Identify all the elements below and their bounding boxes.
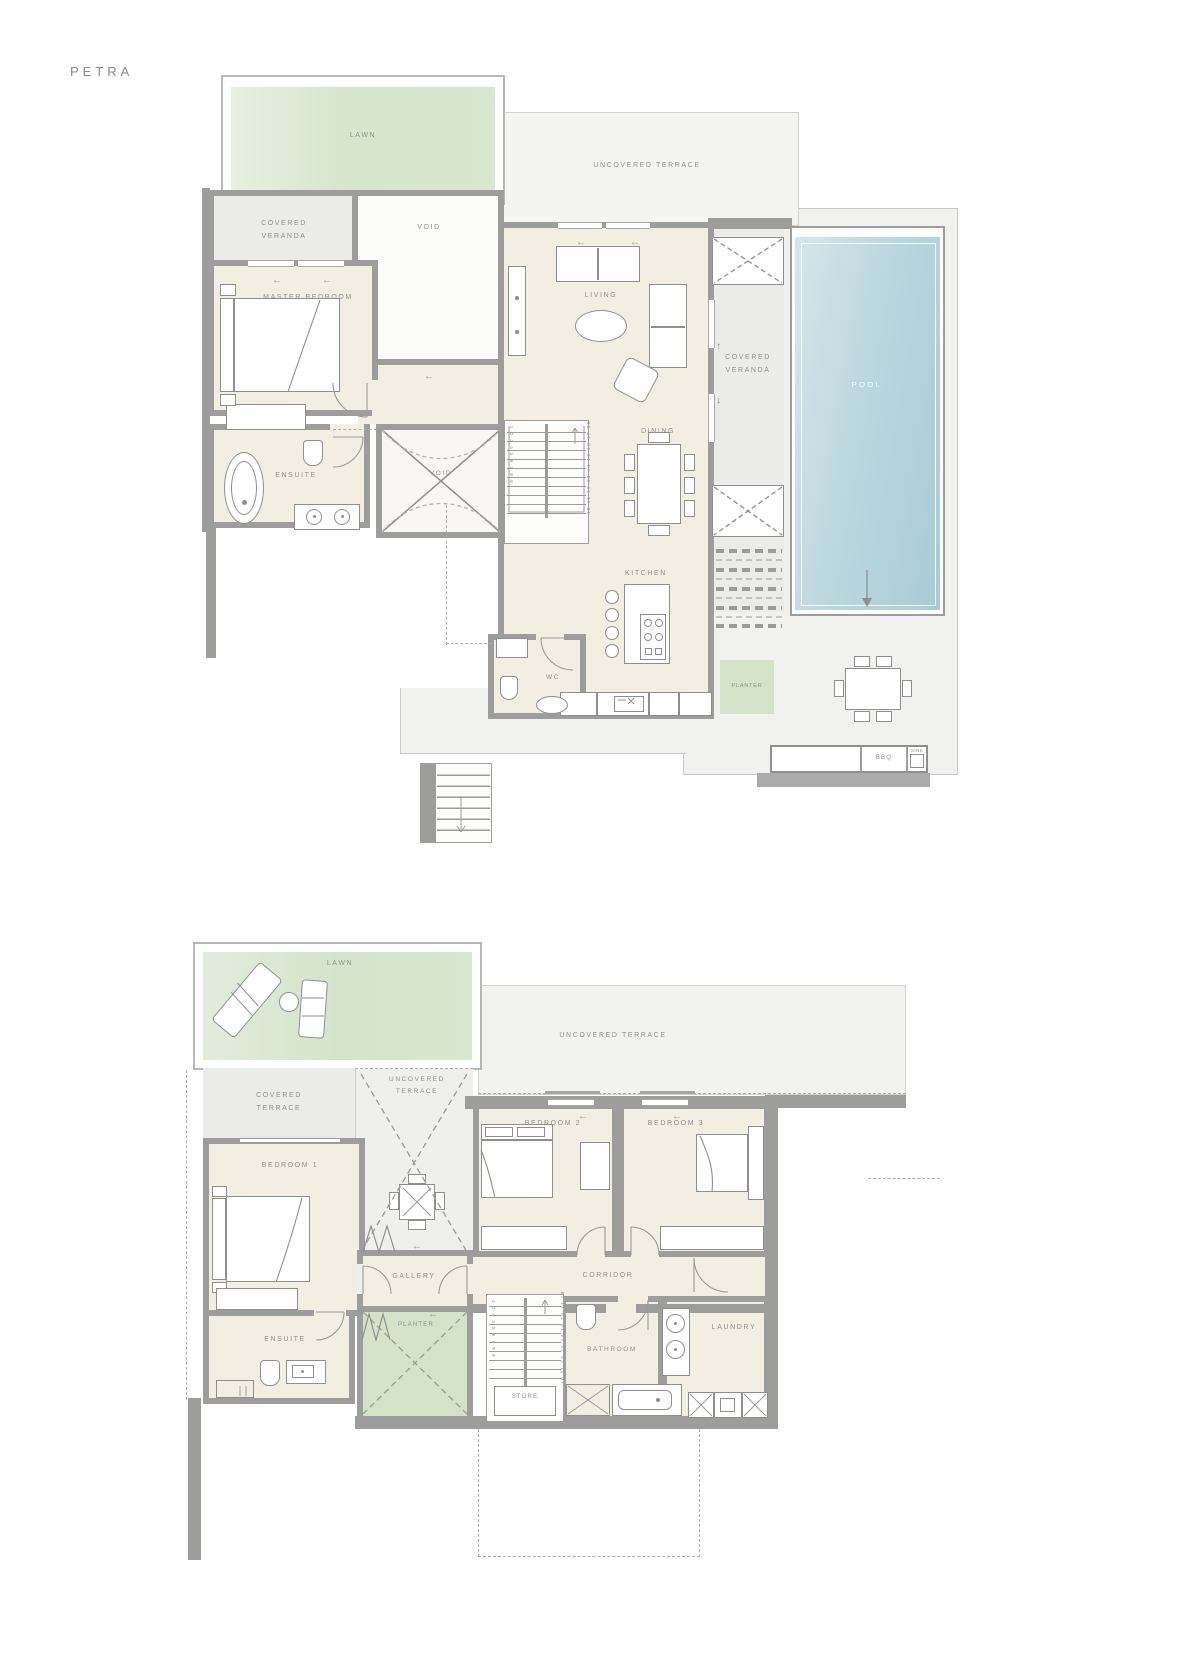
- label-corridor: CORRIDOR: [583, 1270, 634, 1283]
- door-arrow-icon: ←: [412, 1242, 422, 1252]
- label-wc: WC: [546, 672, 560, 684]
- door-arrow-icon: ↑: [716, 342, 721, 352]
- label-covered-terrace: COVERED TERRACE: [243, 1090, 315, 1115]
- plant-symbols: [240, 698, 634, 1396]
- label-laundry: LAUNDRY: [712, 1322, 757, 1335]
- label-ensuite-upper: ENSUITE: [275, 470, 317, 483]
- label-planter-lower: PLANTER: [398, 1320, 434, 1331]
- label-lawn-lower: LAWN: [327, 958, 353, 971]
- label-lawn-upper: LAWN: [350, 130, 376, 143]
- label-ensuite-lower: ENSUITE: [264, 1334, 306, 1347]
- label-master: MASTER BEDROOM: [263, 292, 353, 305]
- label-store: STORE: [512, 1392, 539, 1403]
- label-veranda-left: COVERED VERANDA: [248, 218, 320, 243]
- structural-x-marks: [382, 239, 782, 535]
- label-pool: POOL: [852, 380, 883, 389]
- label-gallery: GALLERY: [392, 1271, 435, 1284]
- door-arrow-icon: ←: [578, 1112, 588, 1122]
- door-arrow-icon: ←: [272, 276, 282, 286]
- label-kitchen: KITCHEN: [625, 568, 667, 581]
- label-bedroom2: BEDROOM 2: [525, 1118, 581, 1131]
- bed-fold-lines: [276, 300, 713, 1282]
- label-void-mid: VOID: [430, 468, 452, 480]
- label-sink: SINK: [911, 747, 923, 755]
- floorplan-page: PETRA: [0, 0, 1182, 1654]
- stair-numbers-lower-right: 10 11 12 13 14 15 16 17 18: [560, 1290, 565, 1384]
- door-arrow-icon: ←: [428, 1310, 438, 1320]
- label-living: LIVING: [585, 290, 618, 303]
- door-arcs: [316, 383, 728, 1340]
- door-arrow-icon: ←: [424, 372, 434, 382]
- stair-numbers-lower-left: 1 2 3 4 5 6 7 8 9: [491, 1300, 496, 1358]
- pergola-hatch-lines: [716, 551, 782, 626]
- plan-annotations: [0, 0, 1182, 1654]
- stair-outlines: [457, 426, 584, 1314]
- chaise-lines: [228, 982, 324, 1016]
- stair-numbers-upper-left: 1 2 3 4 5 6 7 8 9: [509, 426, 514, 484]
- label-bedroom1: BEDROOM 1: [262, 1160, 318, 1173]
- stair-numbers-upper-right: 10 11 12 13 14 15 16 17 18: [586, 420, 591, 514]
- door-arrow-icon: ←: [322, 276, 332, 286]
- pool-arrow: [862, 570, 872, 607]
- label-void-top: VOID: [417, 222, 441, 235]
- label-veranda-right: COVERED VERANDA: [715, 352, 781, 377]
- label-terrace-small: UNCOVERED TERRACE: [376, 1074, 458, 1097]
- door-arrow-icon: ←: [672, 1112, 682, 1122]
- door-arrow-icon: ←: [630, 238, 640, 248]
- label-planter-upper: PLANTER: [732, 682, 763, 692]
- label-dining: DINING: [641, 426, 675, 439]
- label-terrace-lower-main: UNCOVERED TERRACE: [559, 1030, 666, 1043]
- label-bathroom: BATHROOM: [587, 1344, 637, 1356]
- door-arrow-icon: ←: [576, 238, 586, 248]
- door-arrow-icon: ↓: [716, 396, 721, 406]
- label-terrace-upper: UNCOVERED TERRACE: [593, 160, 700, 173]
- label-bbq: BBQ: [876, 753, 892, 764]
